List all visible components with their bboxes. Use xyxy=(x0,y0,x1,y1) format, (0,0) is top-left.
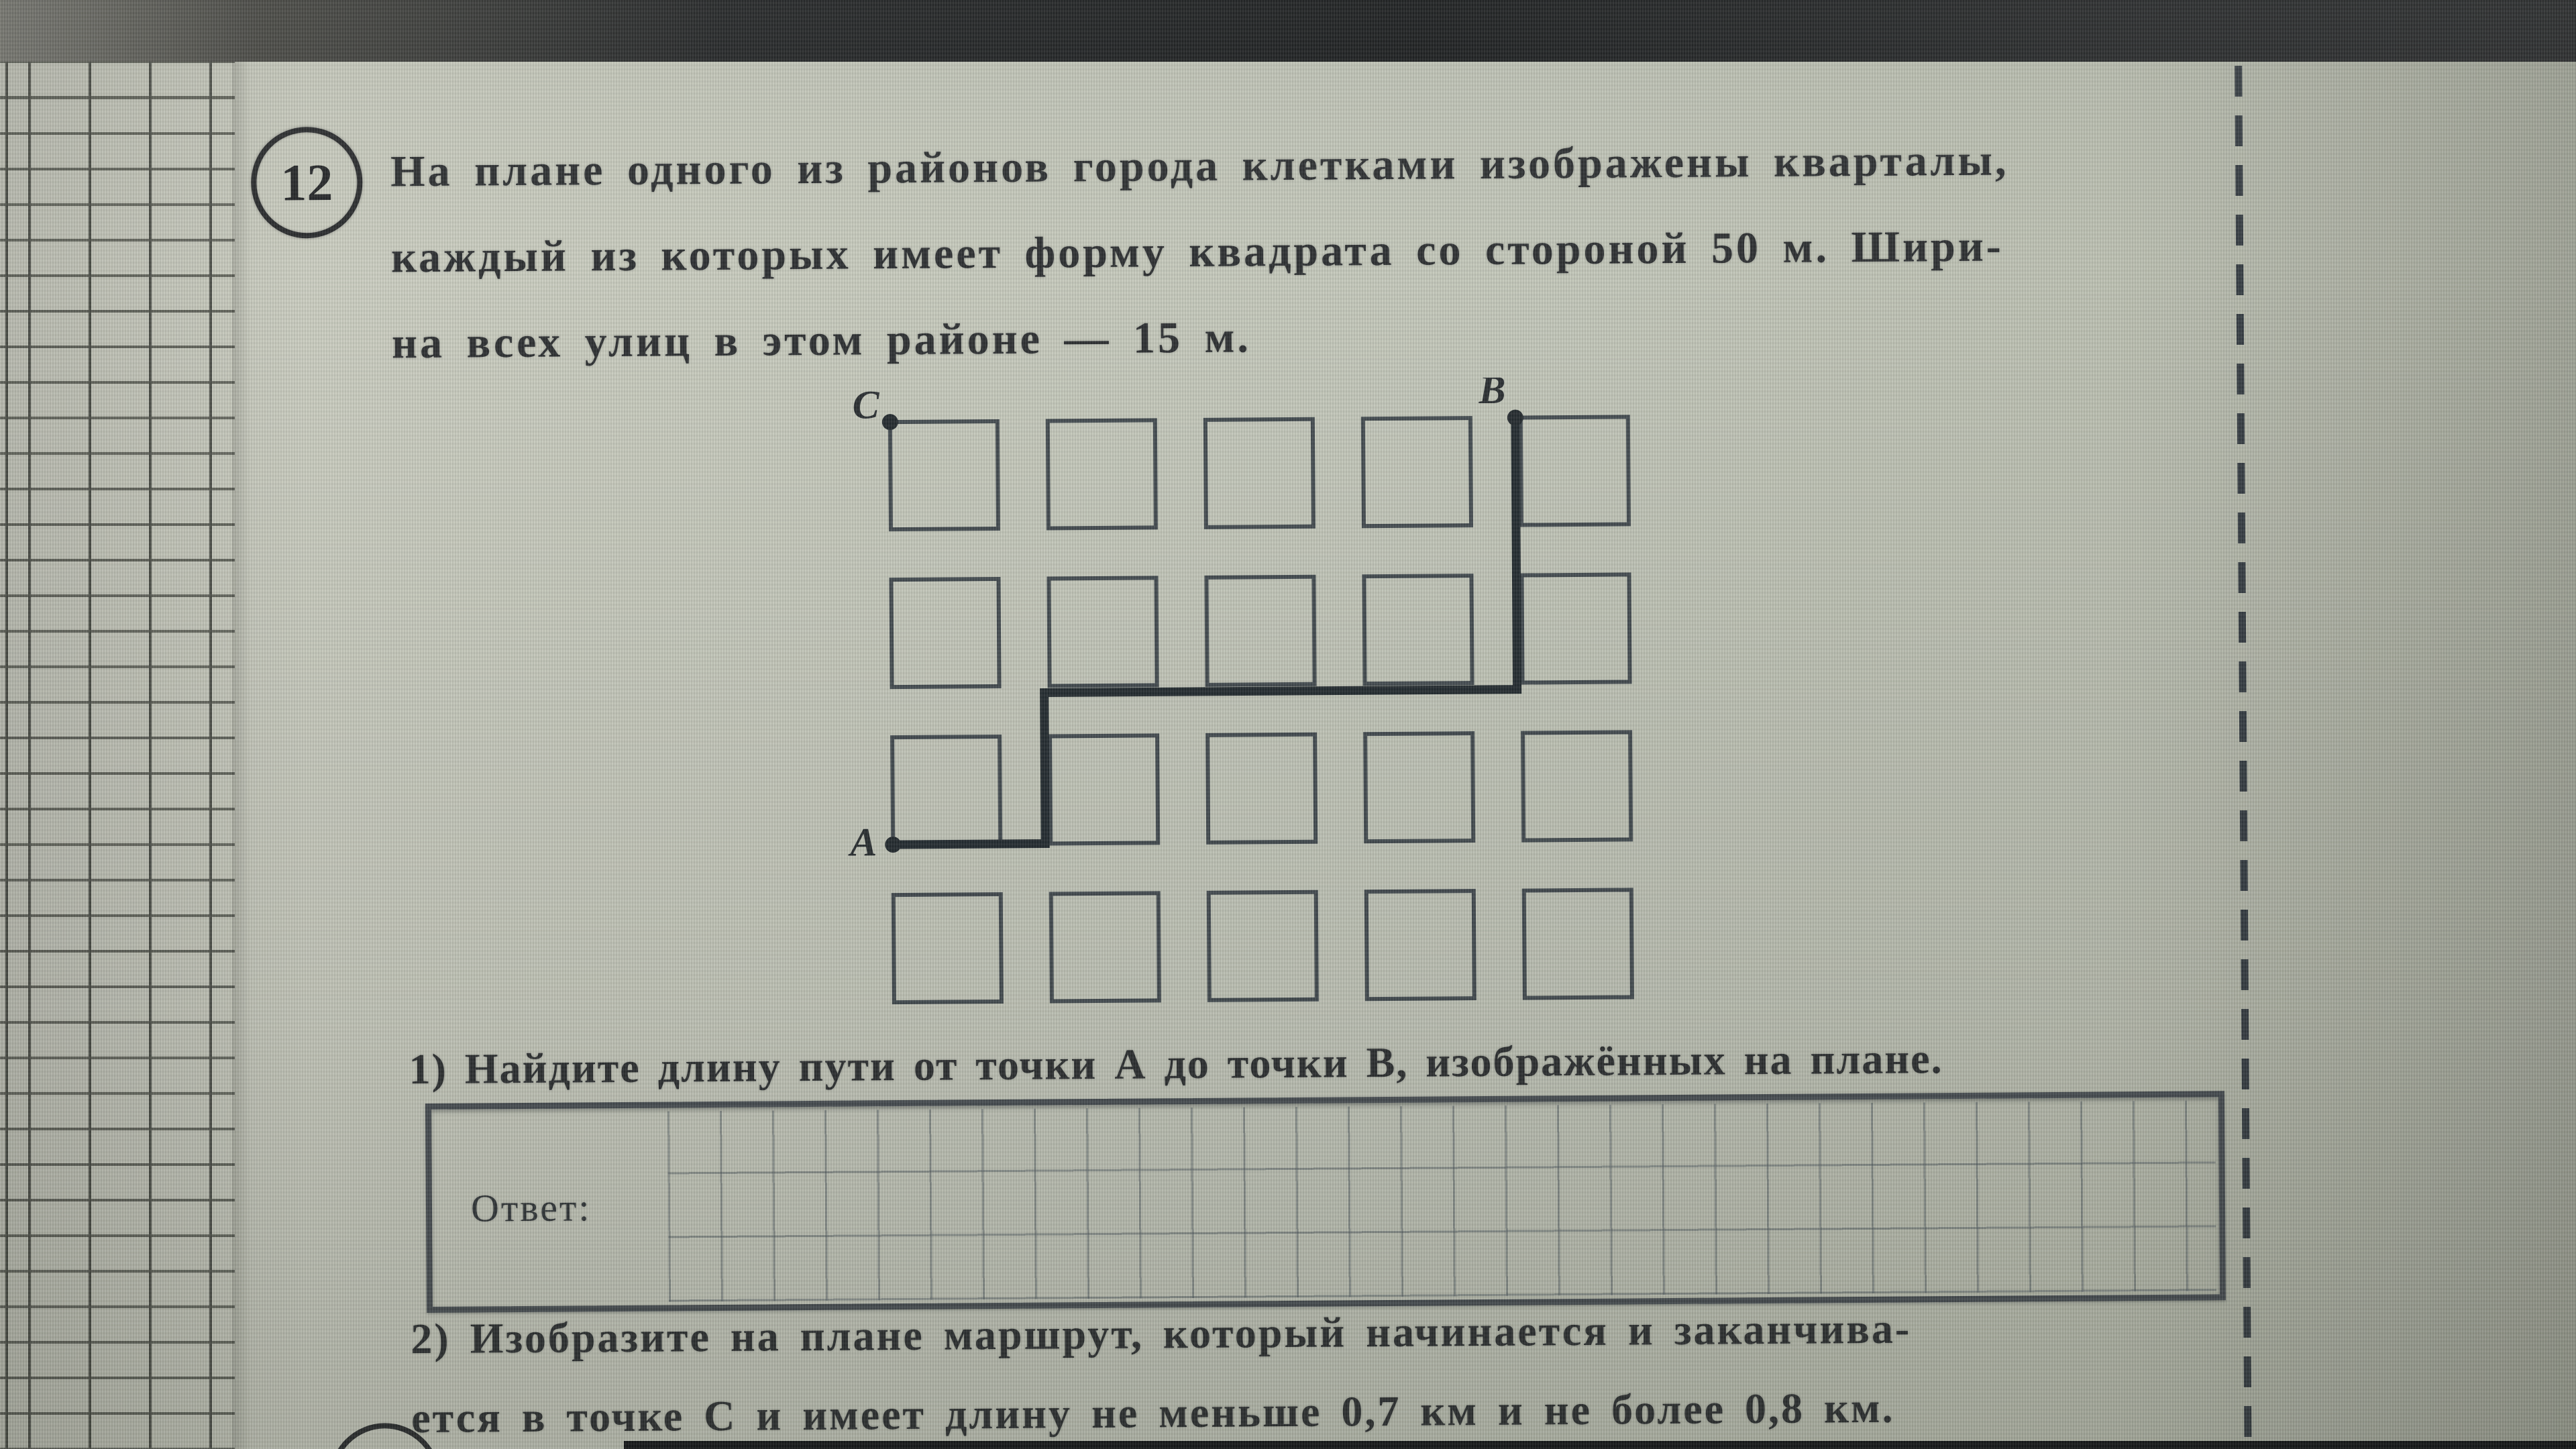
city-block xyxy=(1363,418,1471,526)
city-block xyxy=(892,737,1000,845)
statement-line-3: на всех улиц в этом районе — 15 м. xyxy=(392,307,2257,367)
city-block xyxy=(894,894,1002,1002)
city-block xyxy=(1049,578,1157,686)
point-label-B: B xyxy=(1478,376,1505,412)
city-block xyxy=(1205,419,1313,527)
city-block xyxy=(1521,417,1629,525)
page-content: 12 На плане одного из районов города кле… xyxy=(0,0,2576,1449)
point-label-C: C xyxy=(852,382,879,427)
city-block xyxy=(1209,892,1317,1000)
point-dot-A xyxy=(885,837,901,853)
city-block xyxy=(1364,576,1472,684)
point-dot-B xyxy=(1507,410,1523,426)
city-block xyxy=(1207,735,1316,843)
city-block xyxy=(1365,733,1473,841)
city-block xyxy=(1523,732,1631,840)
question-2-line-2: ется в точке С и имеет длину не меньше 0… xyxy=(411,1381,2276,1443)
paper-seam-shadow xyxy=(232,62,250,1449)
top-dark-edge xyxy=(0,0,2576,62)
question-1: 1) Найдите длину пути от точки А до точк… xyxy=(409,1032,2273,1094)
photographed-workbook-page: 12 На плане одного из районов города кле… xyxy=(0,0,2576,1449)
city-block xyxy=(1521,574,1629,682)
city-block xyxy=(1206,577,1314,685)
city-block xyxy=(1051,893,1159,1001)
problem-number: 12 xyxy=(280,152,333,213)
point-label-A: A xyxy=(847,820,877,864)
statement-line-1: На плане одного из районов города клетка… xyxy=(390,136,2255,195)
answer-grid-cells[interactable] xyxy=(667,1100,2216,1301)
statement-line-2: каждый из которых имеет форму квадрата с… xyxy=(391,221,2256,281)
answer-label: Ответ: xyxy=(470,1108,592,1306)
city-plan-diagram: CBA xyxy=(836,376,1666,1053)
city-block xyxy=(891,579,999,687)
city-block xyxy=(890,421,998,529)
point-dot-C xyxy=(882,414,898,430)
city-block xyxy=(1048,420,1156,528)
problem-number-badge: 12 xyxy=(251,127,363,239)
city-block xyxy=(1050,735,1158,843)
city-block xyxy=(1366,891,1474,999)
city-block xyxy=(1524,890,1632,998)
answer-box: Ответ: xyxy=(425,1091,2226,1313)
bottom-dark-edge xyxy=(624,1441,2576,1449)
page-cut-dashed-line xyxy=(2235,66,2251,1442)
notebook-grid-paper xyxy=(0,62,235,1449)
